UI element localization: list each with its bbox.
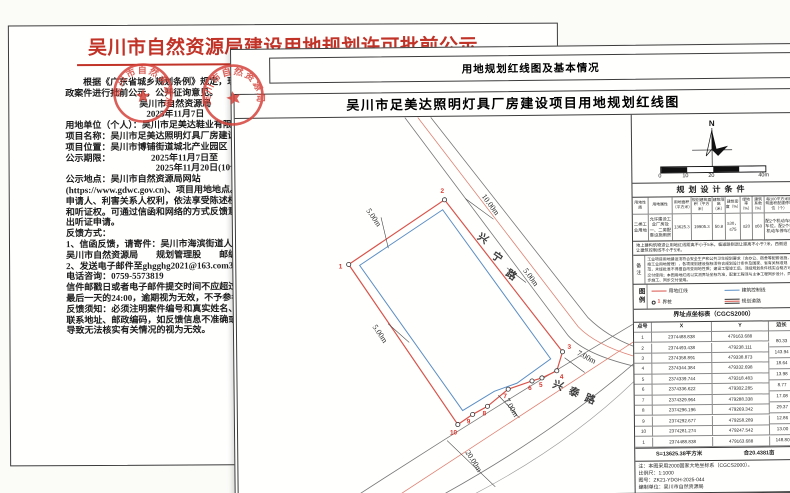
road-xingtai-south-edge <box>440 364 634 493</box>
point-number-6: 6 <box>528 385 532 392</box>
coord-cell: 10 <box>635 427 653 437</box>
road-xingtai-north-edge <box>354 324 634 493</box>
coord-cell: 479318.483 <box>712 373 769 384</box>
redline-symbol <box>652 290 667 291</box>
dimension-label-5m-top: 5.00m <box>364 207 383 229</box>
road-lines <box>352 115 635 493</box>
north-label: N <box>709 119 715 128</box>
condition-value-cell: 允许建设工业厂房及一、二类配套设施用房 <box>649 214 673 240</box>
coord-cell: 2374336.622 <box>653 384 713 395</box>
dimension-label-20m-road: 20.00m <box>463 449 484 475</box>
seal-star-icon <box>136 89 150 102</box>
dimension-label-7m-east: 7.00m <box>576 348 599 366</box>
coord-cell: 2374339.744 <box>652 374 712 385</box>
coord-cell: 5 <box>634 375 652 385</box>
condition-header-cell: 每100平方米建筑面积配建停车位（个） <box>765 196 790 213</box>
coord-header-cell: 点号 <box>634 322 652 332</box>
scale-bar-labels: 0 10 20 40m <box>632 172 790 184</box>
map-body: 5.00m 10.00m 5.00m 5.00m 7.00m 7.00m 20.… <box>235 113 790 493</box>
legend-item-label: 规划道路 <box>742 298 761 305</box>
condition-value-cell: 13625.3 <box>673 214 692 240</box>
building-control-polygon <box>359 209 551 412</box>
coord-cell: 1 <box>635 437 653 447</box>
scale-label-0: 0 <box>658 173 661 179</box>
coord-cell: 2374493.438 <box>652 343 712 354</box>
coord-cell: 2374358.891 <box>652 353 712 364</box>
road-name-xingning-char3: 路 <box>503 267 519 284</box>
coord-cell: 6 <box>635 385 653 395</box>
condition-header-cell: 用地面积（平方米） <box>673 197 692 214</box>
condition-header-cell: 用地属性 <box>649 197 673 214</box>
coordinate-table: 点号XY12374488.838479163.68822374493.43847… <box>634 321 790 449</box>
map-notes: 注：本图采用2000国家大地坐标系（CGCS2000）。比例尺：1:1000图号… <box>635 460 790 493</box>
scale-bar: 0 10 20 40m <box>632 162 790 183</box>
boundary-marker-symbol <box>652 300 656 304</box>
edge-length-cell: 148.80 <box>770 435 790 446</box>
coord-cell: 479269.342 <box>713 405 770 416</box>
coordinate-table-body: 点号XY12374488.838479163.68822374493.43847… <box>634 321 770 448</box>
dimension-label-5m-left: 5.00m <box>371 323 390 345</box>
map-note: 编制单位：吴川市自然资源局 <box>639 483 790 492</box>
coord-cell: 479247.542 <box>713 425 770 436</box>
legend-label: 图例 <box>633 285 647 309</box>
condition-value-cell: 19905.3 <box>692 213 713 239</box>
road-xingtai-centerline <box>396 342 634 493</box>
road-name-xingning-char2: 宁 <box>489 249 505 266</box>
coord-cell: 2374292.677 <box>653 416 713 427</box>
coord-cell: 1 <box>634 333 652 343</box>
condition-header-cell: 建筑密度（%） <box>726 196 741 213</box>
edge-length-cell: 8.77 <box>769 380 790 391</box>
legend-item-label: 界桩 <box>662 299 672 306</box>
edge-length-cell: 12.86 <box>770 413 790 424</box>
legend-item-redline: 用地红线 <box>648 286 721 294</box>
condition-header-cell: 规划建筑面积（平方米） <box>692 196 713 213</box>
road-name-xingtai-char2: 泰 <box>566 384 582 400</box>
edge-length-values: 80.33143.9418.6413.988.7717.0829.3712.86… <box>769 331 790 446</box>
redline-map-drawing: 5.00m 10.00m 5.00m 5.00m 7.00m 7.00m 20.… <box>235 115 635 493</box>
edge-length-cell: 29.37 <box>770 402 790 413</box>
boundary-marker-number: 1 <box>658 300 661 305</box>
legend-item-control-line: 建筑控制线 <box>721 286 790 294</box>
condition-header-cell: 绿地率（%） <box>741 196 753 213</box>
conditions-table: 用地性质用地属性用地面积（平方米）规划建筑面积（平方米）建筑限高（米）建筑密度（… <box>633 196 790 242</box>
area-square-meters: S=13625.38平方米 <box>656 448 702 460</box>
legend-item-boundary-marker: 1 界桩 <box>648 298 721 306</box>
area-mu: 合20.4381亩 <box>744 447 775 459</box>
dimension-label-10m-road: 10.00m <box>480 192 502 217</box>
coord-cell: 7 <box>635 395 653 405</box>
edge-length-cell: 80.33 <box>769 336 790 347</box>
coord-header-cell: Y <box>712 321 769 332</box>
setback-note: 地上建构筑物退让用地红线距离不小于5米，临道路侧退让距离不小于7米，西侧退让建筑… <box>633 240 790 256</box>
coord-cell: 479288.338 <box>713 394 770 405</box>
condition-header-cell: 用地性质 <box>633 197 649 214</box>
coord-cell: 479238.111 <box>712 342 769 353</box>
legend-items: 用地红线 建筑控制线 1 界桩 <box>647 283 790 308</box>
road-name-xingtai-char3: 路 <box>583 391 598 407</box>
coord-cell: 2 <box>634 343 652 353</box>
remark-row: 备注 工业项目用地建设须符合安全生产和公共卫生规划要求（含办公、宿舍等配套设施，… <box>633 254 790 285</box>
edge-length-cell: 143.94 <box>769 347 790 358</box>
coord-cell: 8 <box>635 406 653 416</box>
coord-cell: 479332.698 <box>712 363 769 374</box>
map-side-panel: N <box>631 113 790 493</box>
coord-cell: 479163.688 <box>713 436 770 447</box>
point-number-5: 5 <box>539 382 543 389</box>
edge-length-cell: 18.64 <box>769 358 790 369</box>
condition-value-cell: ≤20 <box>741 213 753 239</box>
map-frame: 吴川市足美达照明灯具厂房建设项目用地规划红线图 <box>233 88 790 493</box>
legend-item-planned-road: 规划道路 <box>721 297 790 305</box>
scale-label-40m: 40m <box>758 172 769 178</box>
map-canvas: 5.00m 10.00m 5.00m 5.00m 7.00m 7.00m 20.… <box>235 115 635 493</box>
coord-header-cell: X <box>652 322 712 333</box>
coord-cell: 2374344.384 <box>652 363 712 374</box>
scanned-notice-page: 吴川市自然资源局建设用地规划许可批前公示 根据《广东省城乡规划条例》规定，现将以… <box>0 0 790 493</box>
point-number-3: 3 <box>567 344 571 351</box>
official-seal-left: 吴川市自然资源局 <box>111 61 175 125</box>
condition-value-cell: ≥30，≤75 <box>726 213 741 239</box>
coord-cell: 2374488.838 <box>652 332 712 343</box>
point-number-9: 9 <box>467 418 471 425</box>
coord-cell: 3 <box>634 354 652 364</box>
remark-label: 备注 <box>633 256 645 284</box>
road-xingning-west-edge <box>405 115 633 368</box>
coord-cell: 479163.688 <box>712 332 769 343</box>
svg-text:吴川市自然资源局: 吴川市自然资源局 <box>112 64 175 109</box>
coord-cell: 2374329.964 <box>653 395 713 406</box>
scale-label-20: 20 <box>708 173 714 179</box>
seal-text: 吴川市自然资源局 <box>112 64 175 109</box>
condition-value-cell: 二类工业用地 <box>633 214 649 240</box>
map-section-header: 用地规划红线图及基本情况 <box>269 52 790 83</box>
legend: 图例 用地红线 建筑控制线 <box>633 283 790 309</box>
edge-length-cell: 17.08 <box>770 391 790 402</box>
point-number-2: 2 <box>440 188 444 195</box>
condition-header-cell: 建筑系数（%） <box>753 196 765 213</box>
road-centerlines <box>394 115 635 493</box>
map-section-header-text: 用地规划红线图及基本情况 <box>462 60 600 76</box>
seal-star-icon <box>225 89 242 106</box>
coord-cell: 479258.289 <box>713 415 770 426</box>
road-name-xingtai-char1: 兴 <box>551 377 566 393</box>
coord-cell: 4 <box>634 364 652 374</box>
edge-length-cell: 13.00 <box>770 424 790 435</box>
legend-item-label: 用地红线 <box>669 287 688 294</box>
coord-cell: 2374488.838 <box>653 437 713 448</box>
condition-value-cell: 50.8 <box>713 213 726 239</box>
edge-length-header: 边长 <box>769 321 790 331</box>
redline-map-document: 用地规划红线图及基本情况 吴川市足美达照明灯具厂房建设项目用地规划红线图 <box>230 43 790 493</box>
coord-cell: 479302.285 <box>713 384 770 395</box>
road-name-xingning-char1: 兴 <box>475 230 491 247</box>
point-number-8: 8 <box>483 410 487 417</box>
edge-length-column: 边长 80.33143.9418.6413.988.7717.0829.3712… <box>769 321 790 447</box>
point-number-1: 1 <box>339 264 343 271</box>
field-boundary-line <box>471 382 634 493</box>
coord-cell: 2374281.274 <box>653 426 713 437</box>
coord-cell: 9 <box>635 416 653 426</box>
point-number-4: 4 <box>560 374 564 381</box>
condition-value-cell: ≥60 <box>753 213 765 239</box>
point-number-7: 7 <box>503 393 507 400</box>
condition-header-cell: 建筑限高（米） <box>713 196 726 213</box>
planned-road-symbol <box>725 299 740 304</box>
coord-cell: 479338.873 <box>712 352 769 363</box>
north-arrow-box: N <box>632 113 790 163</box>
condition-value-cell: 配2个机动车停车位，配2个非机动车停车位 <box>765 213 790 239</box>
point-number-10: 10 <box>450 429 458 436</box>
road-xingning-centerline <box>418 115 633 358</box>
control-line-symbol <box>725 289 740 290</box>
coord-cell: 2374296.196 <box>653 405 713 416</box>
remark-text: 工业项目用地建设须符合安全生产和公共卫生规划要求（含办公、宿舍等配套设施，按工业… <box>645 254 790 284</box>
legend-item-label: 建筑控制线 <box>742 286 766 293</box>
scale-label-10: 10 <box>682 173 688 179</box>
edge-length-cell: 13.98 <box>769 369 790 380</box>
